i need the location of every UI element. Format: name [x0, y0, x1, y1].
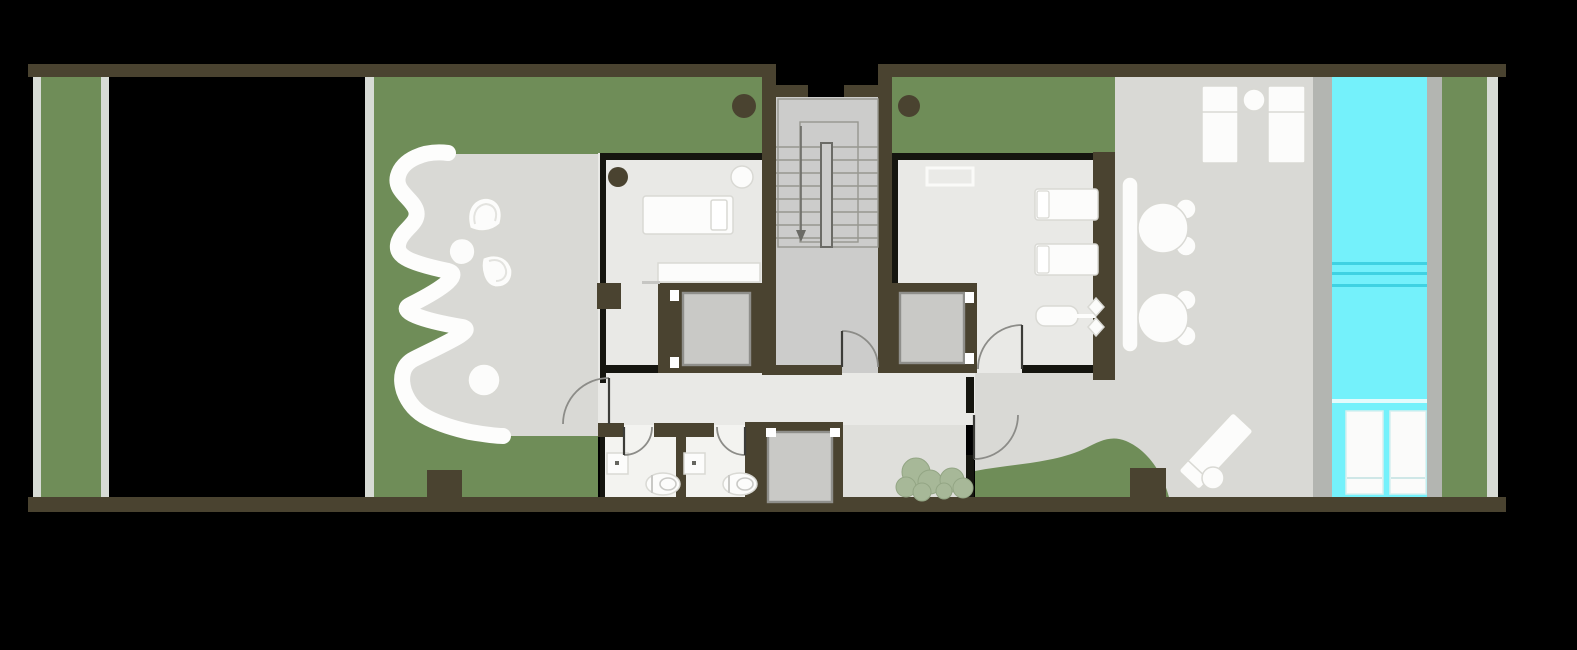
- round-garden-table: [468, 364, 500, 396]
- planter-edge-strip: [33, 77, 41, 497]
- shrub-icon: [913, 483, 931, 501]
- planter-grass: [41, 77, 101, 497]
- elevator-door-gap: [766, 428, 776, 437]
- pool-lane-line: [1332, 284, 1427, 287]
- east-garden: [1442, 77, 1487, 497]
- bathroom-wall: [654, 423, 714, 437]
- bedroom-west-wall: [600, 153, 606, 383]
- shrub-icon: [953, 478, 973, 498]
- elevator-3: [745, 422, 843, 510]
- bathroom-wall: [598, 423, 624, 437]
- sink-drain: [692, 461, 696, 465]
- stone-seat-icon: [449, 239, 475, 265]
- corridor-east-wall: [966, 377, 974, 413]
- pool-module: [1313, 77, 1498, 497]
- stair-newel-wall: [821, 143, 832, 247]
- stair-bottom-wall: [762, 365, 842, 375]
- top-wall-east: [892, 64, 1506, 77]
- tree-icon: [898, 95, 920, 117]
- garden-column: [427, 470, 462, 500]
- east-edge-strip: [1487, 77, 1498, 497]
- in-pool-lounger: [1346, 411, 1383, 494]
- round-side-table: [1243, 89, 1265, 111]
- tree-icon: [732, 94, 756, 118]
- terrace-column: [1130, 468, 1166, 498]
- pool-deck-west: [1313, 77, 1332, 497]
- toilet-icon: [646, 473, 680, 495]
- sun-lounger: [1202, 86, 1238, 163]
- toilet-icon: [723, 473, 757, 495]
- left-planter-strip: [33, 77, 109, 497]
- elevator-door-gap: [670, 357, 679, 368]
- stair-top-wall: [844, 85, 878, 97]
- stair-wall-west: [762, 64, 776, 373]
- pool-deck-east: [1427, 77, 1442, 497]
- elevator-door-gap: [670, 290, 679, 301]
- elevator-door-gap: [830, 428, 840, 437]
- bathroom-west-wall: [600, 437, 605, 497]
- spa-south-wall: [1022, 365, 1093, 373]
- elevator-door-gap: [965, 292, 974, 303]
- sun-lounger: [1268, 86, 1305, 163]
- west-wall-pier: [597, 283, 621, 309]
- planter-edge-strip: [101, 77, 109, 497]
- pool-lane-line: [1332, 272, 1427, 275]
- desk: [658, 263, 760, 282]
- planter-pot-icon: [608, 167, 628, 187]
- elevator-door-gap: [965, 353, 974, 364]
- elevator-car: [768, 432, 832, 502]
- elevator-1: [658, 283, 763, 373]
- machine-bench: [1036, 306, 1078, 326]
- floor-plan-stage: [0, 0, 1577, 650]
- wall-bench: [927, 168, 973, 185]
- bed-pillow: [711, 200, 727, 230]
- elevator-2: [887, 283, 977, 373]
- west-edge-strip: [365, 77, 374, 497]
- cafe-table: [1138, 293, 1188, 343]
- round-side-table: [731, 166, 753, 188]
- bedroom-south-wall: [604, 365, 658, 373]
- pool-step-edge: [1332, 399, 1427, 403]
- lounger-pillow: [1037, 191, 1049, 218]
- floor-plan-svg: [0, 0, 1577, 650]
- north-garden-band-east: [892, 77, 1115, 153]
- elevator-car: [900, 293, 964, 363]
- spa-west-wall: [892, 153, 898, 283]
- desk-ledge: [642, 281, 660, 284]
- pool-lane-line: [1332, 262, 1427, 265]
- spa-north-wall: [892, 153, 1093, 160]
- bedroom-north-wall: [600, 153, 762, 160]
- elevator-car: [683, 293, 750, 365]
- cafe-table: [1138, 203, 1188, 253]
- in-pool-lounger: [1390, 411, 1426, 494]
- long-bench: [1122, 177, 1138, 352]
- stair-top-wall: [776, 85, 808, 97]
- sink-drain: [615, 461, 619, 465]
- stair-core: [762, 64, 892, 375]
- shrub-icon: [936, 483, 952, 499]
- round-side-table: [1202, 467, 1224, 489]
- lounger-pillow: [1037, 246, 1049, 273]
- top-wall-west: [28, 64, 762, 77]
